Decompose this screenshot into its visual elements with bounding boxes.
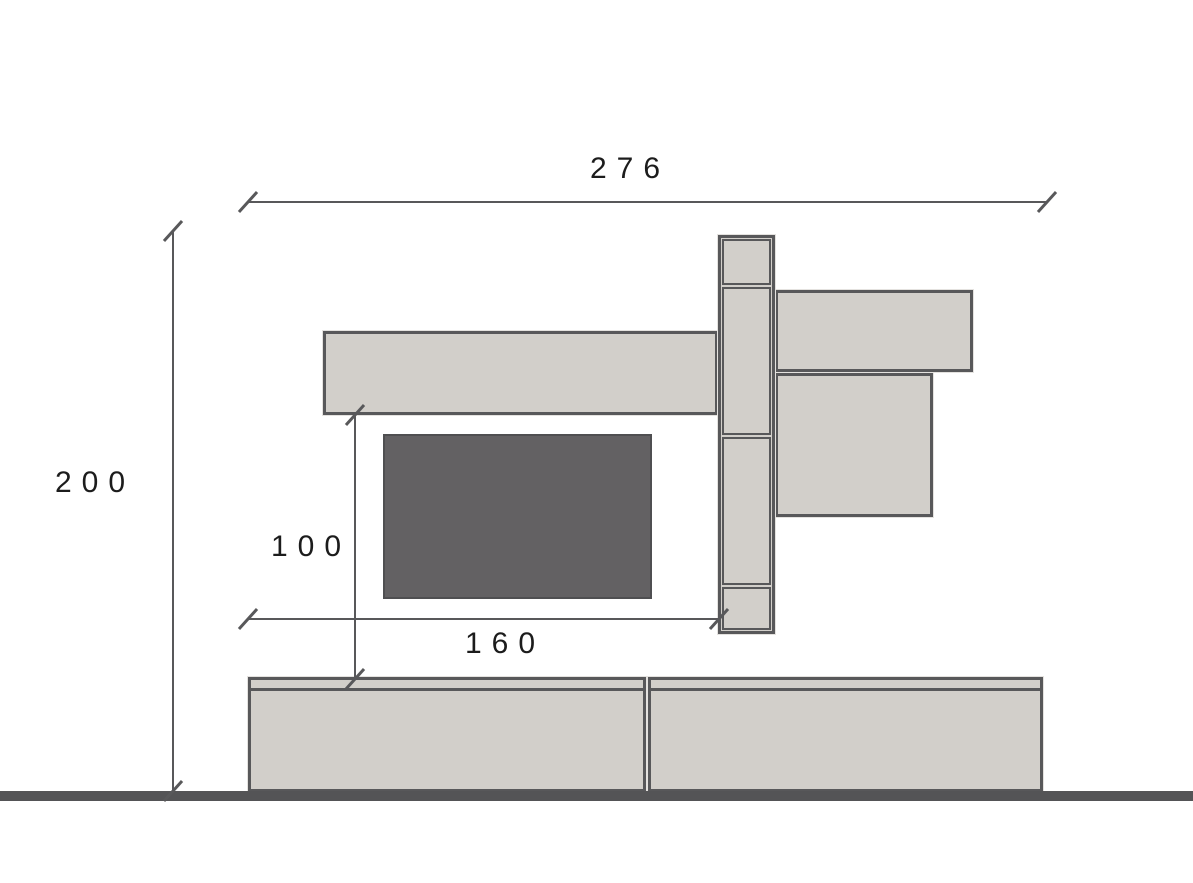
right-shelf [775, 290, 973, 372]
dim-line-tv-width [248, 618, 719, 620]
top-shelf [323, 331, 718, 415]
base-cabinet-left-top-band [251, 680, 643, 691]
column-compartment-2 [722, 287, 771, 435]
right-wall-panel [775, 373, 933, 517]
dim-label-total-height: 200 [50, 466, 140, 500]
floor-line [0, 791, 1193, 801]
dim-label-total-width: 276 [555, 152, 705, 186]
dim-label-tv-height: 100 [266, 530, 356, 564]
technical-drawing: 276 200 100 160 [0, 0, 1193, 883]
column-compartment-3 [722, 437, 771, 585]
tall-cabinet-column [718, 235, 775, 634]
dim-label-tv-width: 160 [430, 627, 580, 661]
base-cabinet-right-top-band [651, 680, 1040, 691]
column-compartment-4 [722, 587, 771, 630]
dim-line-total-width [248, 201, 1047, 203]
column-compartment-1 [722, 239, 771, 285]
dim-line-total-height [172, 231, 174, 793]
base-cabinet-left [248, 677, 646, 792]
base-cabinet-right [648, 677, 1043, 792]
tv-screen [383, 434, 652, 599]
